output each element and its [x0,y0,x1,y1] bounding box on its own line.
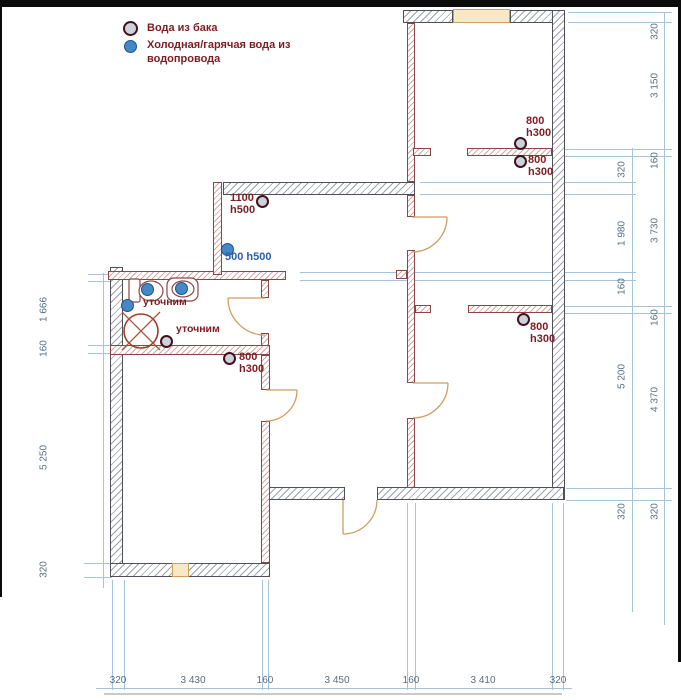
door-middle-upper [412,217,447,252]
legend-supply-label-line2: водопровода [147,54,220,66]
dim-label-bottom: 160 [381,675,441,686]
point-label-line: h500 [230,205,255,217]
point-label-line: 800 [526,116,551,128]
point-label-1100-h500: 1100 h500 [230,193,255,216]
dim-label-left: 1 666 [39,293,50,327]
stove-symbol [122,312,160,350]
point-label-line: h300 [530,334,555,346]
dim-label-right-outer: 320 [650,15,661,49]
point-label-800-h300: 800 h300 [526,116,551,139]
point-label-line: h300 [528,167,553,179]
tank-water-point [256,195,269,208]
point-label-utochnim: уточним [176,324,220,336]
point-label-line: h300 [239,364,264,376]
door-bathroom [228,298,265,335]
dim-label-right-inner: 1 980 [617,217,628,251]
dim-label-left: 160 [39,332,50,366]
dim-label-right-inner: 5 200 [617,360,628,394]
dim-label-right-outer: 3 150 [650,69,661,103]
dim-label-bottom: 3 430 [163,675,223,686]
door-left-room [266,390,297,421]
dim-label-bottom: 3 410 [453,675,513,686]
dim-label-right-outer: 160 [650,144,661,178]
tank-water-legend-icon [123,21,138,36]
supply-water-point [141,283,154,296]
door-bottom-entrance [343,500,377,534]
legend-supply-label-line1: Холодная/гарячая вода из [147,40,291,52]
dim-label-right-inner: 320 [617,153,628,187]
supply-water-legend-icon [124,40,137,53]
dim-label-right-inner: 320 [617,495,628,529]
dim-label-bottom: 160 [235,675,295,686]
point-label-800-h300: 800 h300 [528,155,553,178]
supply-water-point [175,282,188,295]
legend-tank-label: Вода из бака [147,23,218,35]
dim-label-right-outer: 320 [650,495,661,529]
tank-water-point [160,335,173,348]
point-label-line: h300 [526,128,551,140]
tank-water-point [517,313,530,326]
point-label-800-h300: 800 h300 [530,322,555,345]
point-label-line: 1100 [230,193,255,205]
dim-label-right-outer: 4 370 [650,383,661,417]
dim-label-left: 320 [39,553,50,587]
point-label-800-h300: 800 h300 [239,352,264,375]
point-label-line: 800 [239,352,264,364]
doors-and-fixtures-layer [0,0,681,700]
dim-label-left: 5 250 [39,441,50,475]
dim-label-right-outer: 160 [650,301,661,335]
point-label-500-h500: 500 h500 [225,252,271,264]
dim-label-bottom: 320 [88,675,148,686]
point-label-line: 800 [530,322,555,334]
dim-label-bottom: 320 [528,675,588,686]
door-middle-lower [413,383,448,418]
supply-water-point [121,299,134,312]
dim-label-bottom: 3 450 [307,675,367,686]
tank-water-point [223,352,236,365]
floor-plan-canvas: Вода из бака Холодная/гарячая вода из во… [0,0,681,700]
point-label-utochnim: уточним [143,297,187,309]
dim-label-right-inner: 160 [617,270,628,304]
point-label-line: 800 [528,155,553,167]
tank-water-point [514,155,527,168]
dim-label-right-outer: 3 730 [650,214,661,248]
